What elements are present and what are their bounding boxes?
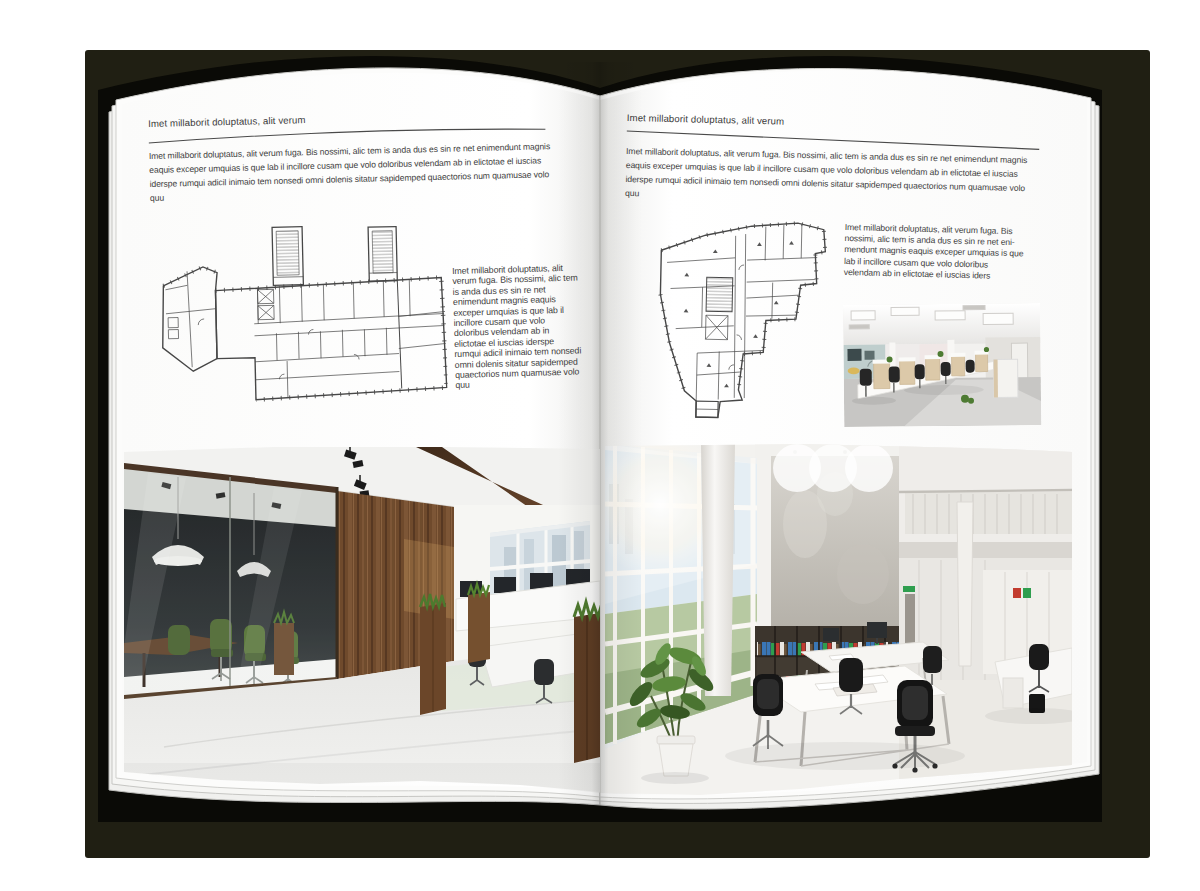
- corridor-door: [905, 594, 915, 650]
- right-page-small-photo: [843, 303, 1041, 427]
- stair-tower-a: [272, 227, 303, 286]
- photo-white-cubicle-office: [843, 303, 1041, 427]
- safety-sign-green: [1023, 588, 1031, 598]
- mezzanine-balcony: [899, 444, 1072, 558]
- left-wing: [161, 267, 219, 372]
- right-floor-plan: [644, 218, 842, 424]
- exit-sign: [903, 586, 915, 592]
- left-side-text: Imet millaborit doluptatus, alit verum f…: [452, 262, 583, 390]
- right-side-text: Imet millaborit doluptatus, alit verum f…: [844, 222, 1027, 282]
- safety-sign-red: [1013, 588, 1021, 598]
- magazine-mockup-scene: Imet millaborit doluptatus, alit verum I…: [0, 0, 1200, 891]
- elevator-core: [257, 289, 274, 319]
- left-page-photo: [124, 447, 600, 803]
- right-page-header-block: Imet millaborit doluptatus, alit verum I…: [625, 112, 1041, 209]
- left-floor-plan: [156, 219, 448, 415]
- column: [701, 444, 735, 696]
- left-intro-paragraph: Imet millaborit doluptatus, alit verum f…: [149, 139, 560, 205]
- floor-plan-right-drawing: [644, 218, 842, 424]
- plan-fixture-marks: [682, 239, 794, 389]
- photo-bright-atrium-office: [605, 444, 1072, 796]
- stair-tower-b: [368, 227, 397, 282]
- floor-plan-left-drawing: [156, 219, 448, 415]
- photo-dark-wood-office: [124, 447, 600, 803]
- right-intro-paragraph: Imet millaborit doluptatus, alit verum f…: [625, 144, 1036, 209]
- right-page-photo: [605, 444, 1072, 796]
- left-page-header-block: Imet millaborit doluptatus, alit verum I…: [148, 108, 560, 205]
- glass-meeting-room: [124, 463, 337, 702]
- concrete-wall: [771, 444, 899, 628]
